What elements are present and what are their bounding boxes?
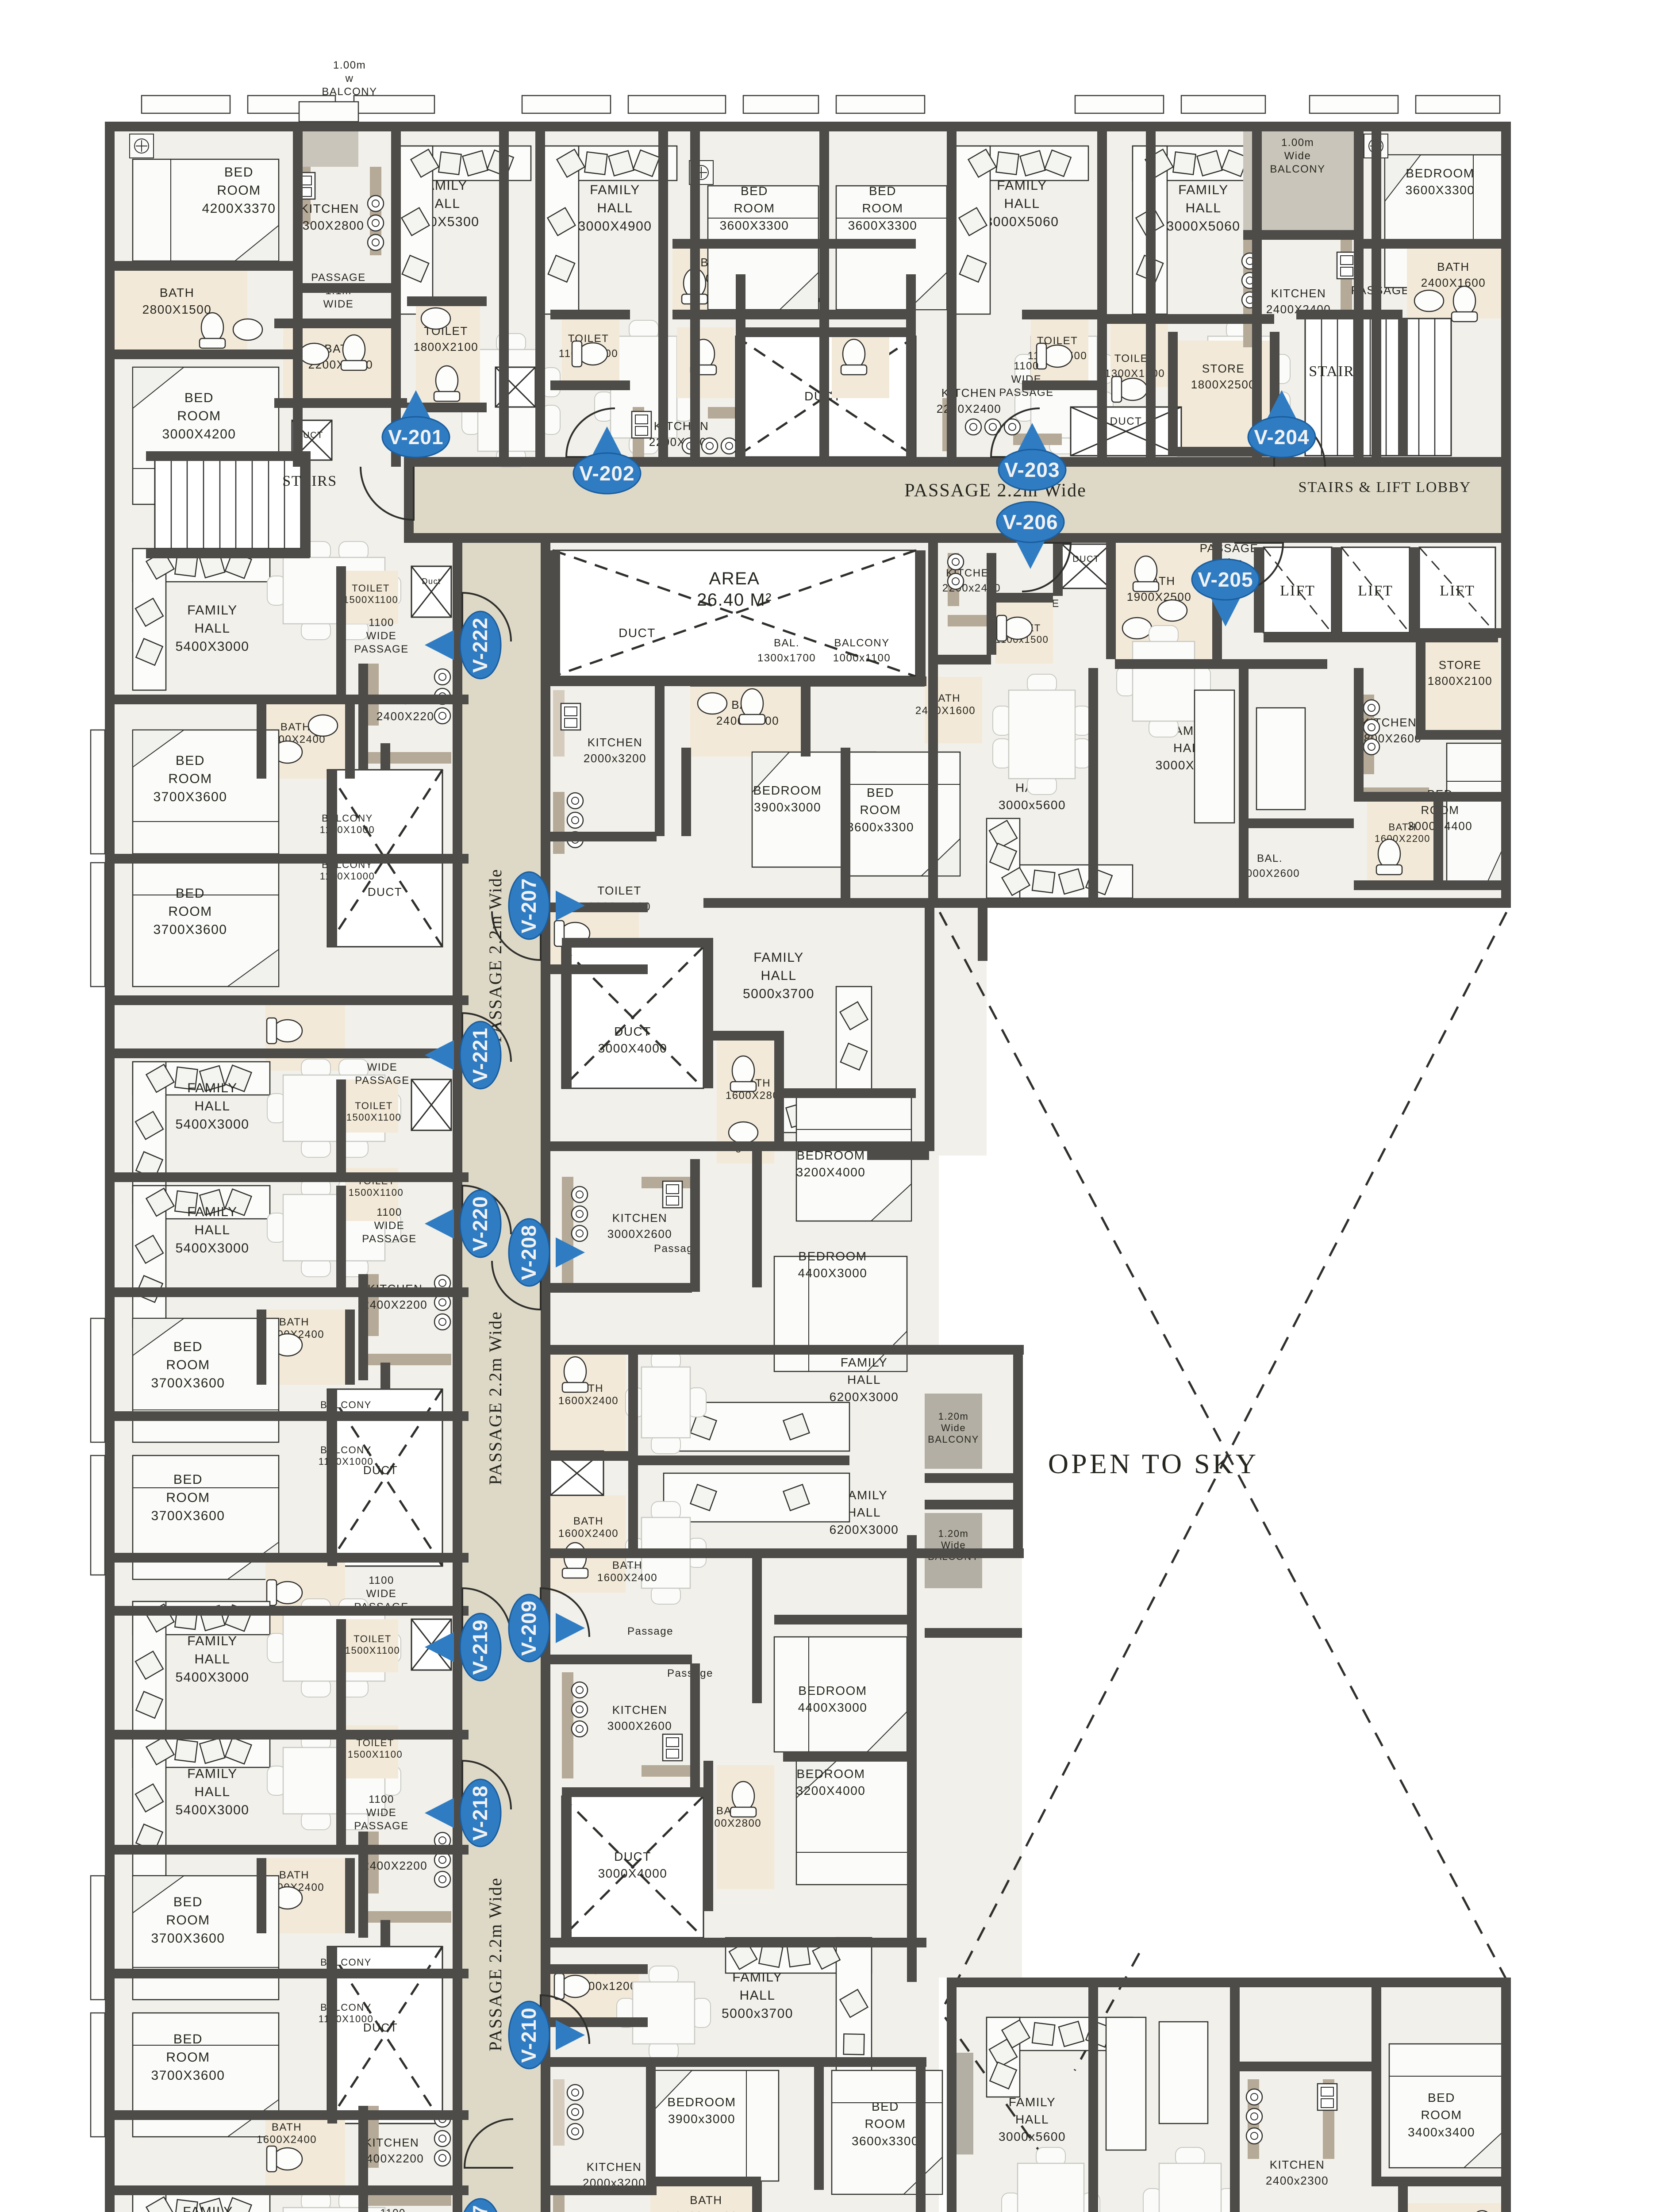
svg-text:LIFT: LIFT — [1280, 583, 1315, 599]
svg-text:Duct: Duct — [422, 577, 441, 586]
svg-text:DUCT: DUCT — [363, 1463, 398, 1477]
svg-text:V-201: V-201 — [388, 426, 443, 449]
svg-text:V-217: V-217 — [469, 2204, 492, 2212]
svg-text:V-218: V-218 — [469, 1785, 492, 1840]
svg-text:Passage: Passage — [627, 1625, 673, 1637]
svg-text:LIFT: LIFT — [1440, 583, 1475, 599]
svg-text:V-206: V-206 — [1003, 511, 1058, 534]
svg-text:DUCT: DUCT — [619, 626, 656, 640]
svg-text:V-221: V-221 — [469, 1027, 492, 1083]
svg-text:V-222: V-222 — [469, 617, 492, 672]
svg-text:V-205: V-205 — [1198, 568, 1253, 591]
svg-text:V-209: V-209 — [517, 1600, 540, 1655]
svg-text:V-202: V-202 — [579, 462, 634, 485]
svg-text:V-204: V-204 — [1254, 426, 1309, 449]
svg-text:LIFT: LIFT — [1358, 583, 1393, 599]
svg-text:V-219: V-219 — [469, 1619, 492, 1674]
svg-text:STAIRS & LIFT LOBBY: STAIRS & LIFT LOBBY — [1299, 479, 1472, 495]
svg-text:PASSAGE 2.2m Wide: PASSAGE 2.2m Wide — [485, 1877, 505, 2051]
svg-text:DUCT: DUCT — [368, 885, 402, 899]
svg-text:V-208: V-208 — [517, 1225, 540, 1280]
svg-text:DUCT: DUCT — [1072, 554, 1100, 564]
svg-text:V-203: V-203 — [1004, 458, 1060, 481]
svg-text:PASSAGE 2.2m Wide: PASSAGE 2.2m Wide — [904, 480, 1087, 501]
svg-text:DUCT: DUCT — [363, 2021, 398, 2034]
svg-text:V-207: V-207 — [517, 878, 540, 933]
svg-text:PASSAGE 2.2m Wide: PASSAGE 2.2m Wide — [485, 1311, 505, 1485]
svg-text:V-210: V-210 — [517, 2007, 540, 2062]
svg-text:V-220: V-220 — [469, 1196, 492, 1251]
svg-text:PASSAGE 2.2m Wide: PASSAGE 2.2m Wide — [485, 868, 505, 1043]
svg-text:DUCT: DUCT — [1110, 415, 1142, 427]
